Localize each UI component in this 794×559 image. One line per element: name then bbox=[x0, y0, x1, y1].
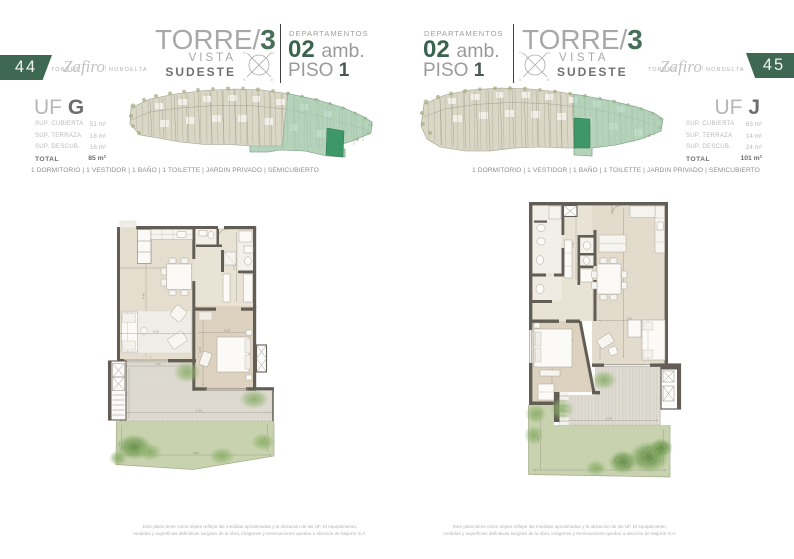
svg-text:7.61: 7.61 bbox=[155, 362, 161, 366]
svg-text:5.15: 5.15 bbox=[224, 329, 230, 333]
svg-text:3.06: 3.06 bbox=[198, 347, 202, 353]
svg-text:5.75: 5.75 bbox=[606, 417, 612, 421]
svg-text:4.10: 4.10 bbox=[153, 329, 159, 333]
svg-text:4.46: 4.46 bbox=[142, 293, 146, 299]
svg-text:8.61: 8.61 bbox=[193, 451, 199, 455]
svg-text:6.10: 6.10 bbox=[196, 409, 202, 413]
